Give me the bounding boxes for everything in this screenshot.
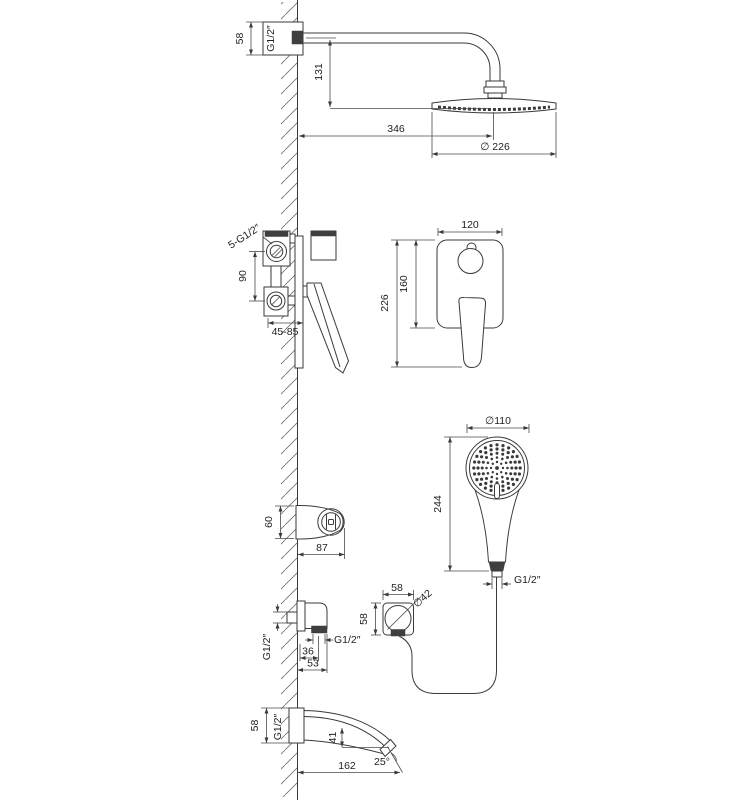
- dim-label: 53: [307, 658, 319, 670]
- dim-label: 41: [327, 732, 339, 744]
- dim-label: 346: [387, 123, 405, 135]
- dim-label: 226: [379, 294, 391, 312]
- dim-escutcheon-58: 58 G1/2″: [234, 22, 277, 55]
- tub-spout-assembly: 58 G1/2″ 41 162 25°: [249, 708, 403, 773]
- mixer-handle-front: [459, 297, 486, 367]
- outlet-front-connector: [391, 630, 405, 637]
- dim-drop-131: 131: [306, 38, 489, 109]
- dim-face-height-58: 58: [358, 603, 381, 635]
- dim-port-spacing-90: 90: [237, 252, 265, 302]
- mode-switch: [495, 484, 500, 499]
- shower-holder: 60 87: [263, 505, 345, 559]
- arm-bend-inner: [464, 43, 490, 69]
- dim-label: 58: [358, 613, 370, 625]
- dim-plate-height-160: 160: [391, 240, 435, 328]
- dim-label: ∅110: [485, 415, 511, 427]
- arm-bend-outer: [464, 33, 500, 69]
- dim-label: 90: [237, 270, 249, 282]
- mixer-trim-plate-front: 120 160 226: [379, 219, 503, 368]
- drawing-canvas: 58 G1/2″ 131 346 ∅ 226: [0, 0, 731, 800]
- spout-escutcheon: [289, 708, 304, 743]
- dim-label: 120: [461, 219, 479, 231]
- dim-reach-346: 346: [299, 123, 492, 136]
- dim-label: G1/2″: [261, 633, 273, 660]
- thread-label: G1/2″: [265, 25, 277, 52]
- dim-label: 162: [338, 760, 356, 772]
- head-connector: [486, 81, 504, 87]
- dim-label: 5-G1/2″: [226, 222, 263, 252]
- dim-label: 160: [398, 275, 410, 293]
- installation-drawing: 58 G1/2″ 131 346 ∅ 226: [0, 0, 731, 800]
- dim-label: 244: [432, 495, 444, 513]
- dim-hand-diameter-110: ∅110: [467, 415, 529, 433]
- hand-shower-handle: [475, 490, 519, 562]
- outlet-wall-stub: [287, 612, 297, 623]
- angle-label: 25°: [374, 756, 390, 768]
- diverter-knob: [458, 249, 483, 274]
- outlet-elbow-side-view: G1/2″ G1/2″ 36 53: [261, 601, 361, 673]
- hose-nut: [489, 562, 505, 571]
- dim-label: 131: [313, 63, 325, 81]
- arm-wall-connector: [292, 31, 303, 44]
- dim-label: 36: [302, 646, 314, 658]
- outlet-hose-connector: [312, 626, 328, 633]
- hand-shower-assembly: ∅110 244 G1/2″: [399, 415, 541, 694]
- dim-label: ∅42: [411, 587, 435, 610]
- dim-label: 58: [234, 33, 246, 45]
- dim-plate-width-120: 120: [438, 219, 502, 236]
- dim-label: 58: [391, 582, 403, 594]
- dim-face-width-58: 58: [383, 582, 414, 600]
- dim-label: 58: [249, 720, 261, 732]
- dim-label: 45-85: [272, 326, 299, 338]
- outlet-body: [305, 603, 327, 629]
- dim-label: G1/2″: [514, 574, 541, 586]
- dim-label: G1/2″: [334, 634, 361, 646]
- dim-outlet-hose-thread: G1/2″: [305, 634, 361, 646]
- outlet-flange: [297, 601, 305, 631]
- trim-plate-edge: [295, 236, 303, 368]
- dim-label: 87: [316, 542, 328, 554]
- wall-hatching: [281, 2, 297, 797]
- dim-head-diameter-226: ∅ 226: [432, 112, 556, 158]
- thread-label: G1/2″: [272, 713, 284, 740]
- outlet-front-view: ∅42 58 58: [358, 582, 435, 636]
- dim-label: ∅ 226: [480, 141, 510, 153]
- dim-label: 60: [263, 516, 275, 528]
